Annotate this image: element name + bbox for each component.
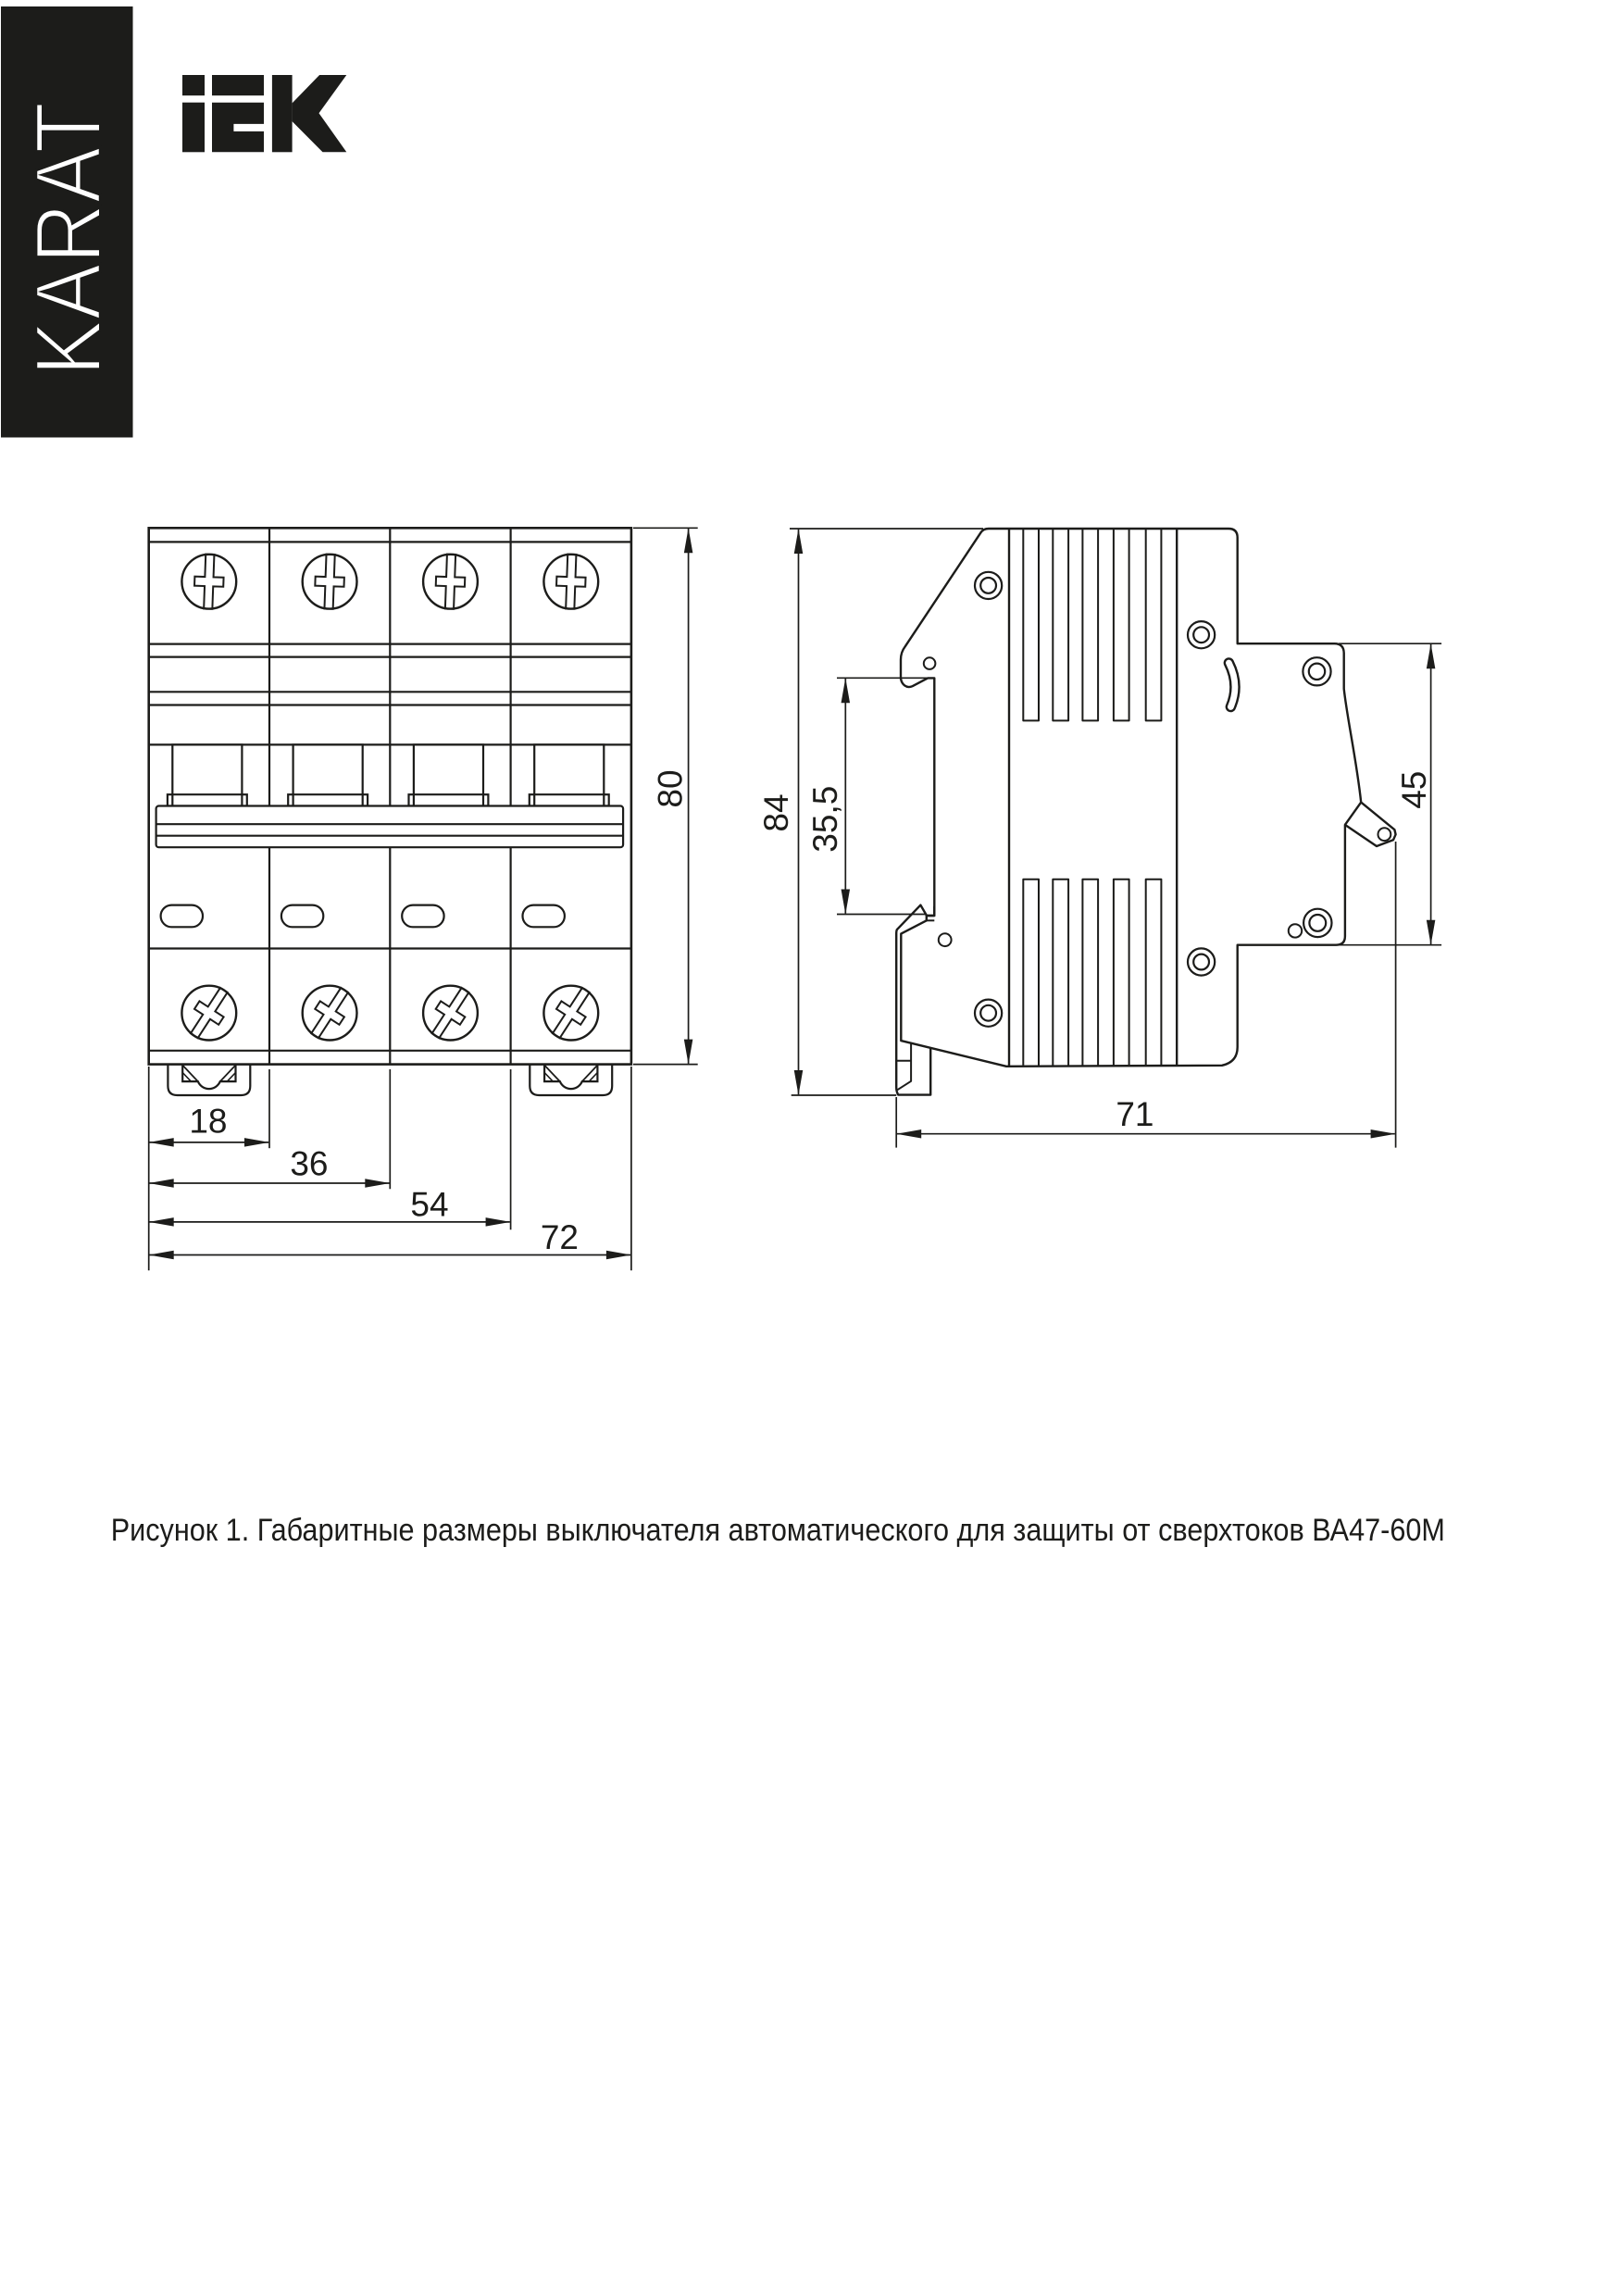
svg-text:18: 18 [189, 1102, 227, 1140]
svg-text:35,5: 35,5 [806, 786, 844, 853]
svg-text:71: 71 [1116, 1095, 1153, 1133]
svg-text:KARAT: KARAT [18, 102, 121, 376]
svg-text:54: 54 [410, 1186, 448, 1224]
svg-text:80: 80 [652, 769, 690, 807]
svg-text:84: 84 [757, 793, 795, 831]
svg-text:72: 72 [541, 1218, 579, 1256]
svg-text:Рисунок 1. Габаритные размеры: Рисунок 1. Габаритные размеры выключател… [111, 1513, 1445, 1548]
svg-text:36: 36 [290, 1145, 328, 1183]
svg-text:45: 45 [1395, 771, 1433, 809]
